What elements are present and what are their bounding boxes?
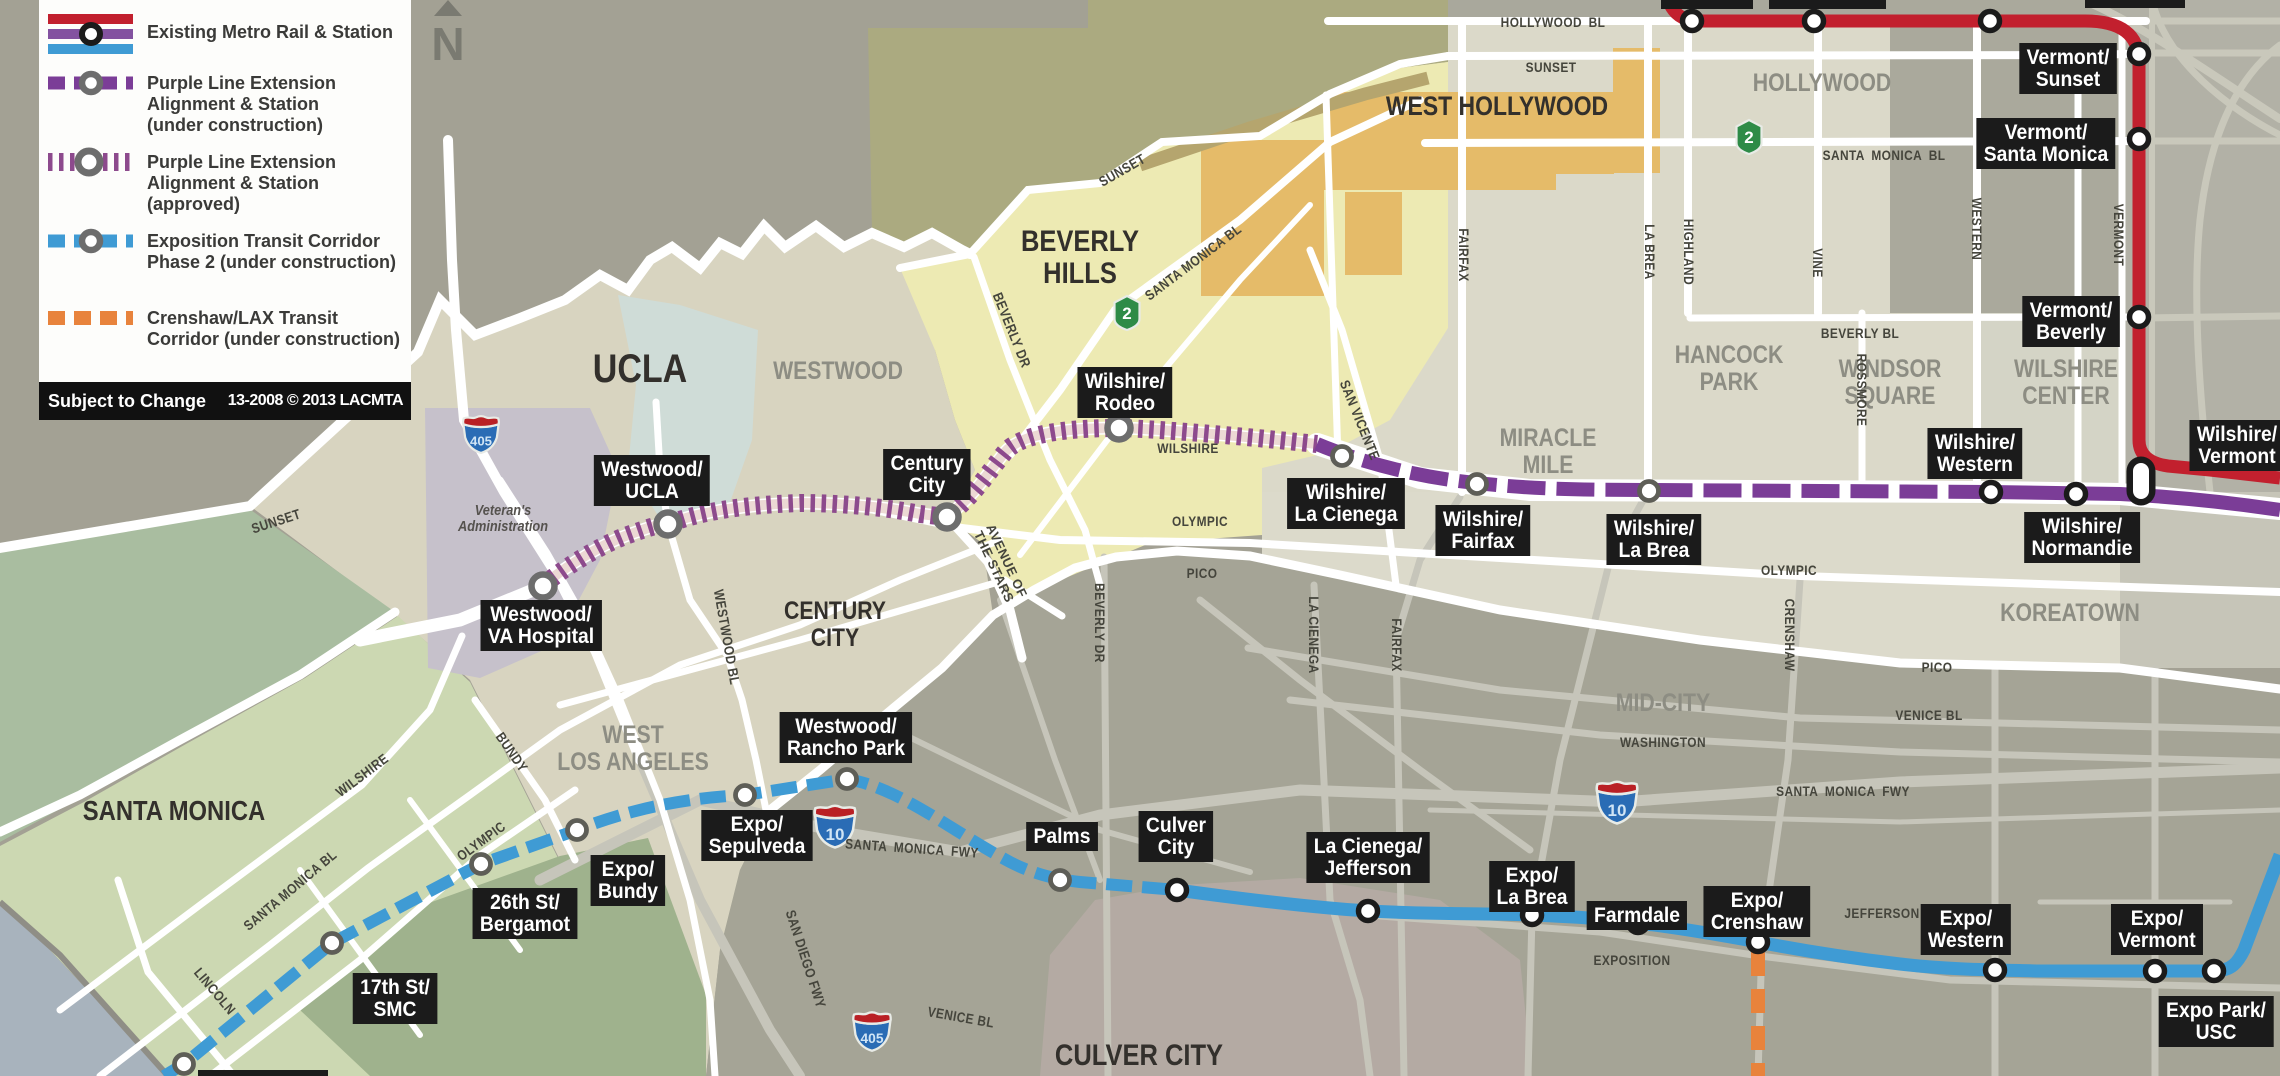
svg-text:10: 10 (826, 825, 845, 844)
svg-text:2: 2 (1122, 304, 1131, 323)
svg-text:10: 10 (1608, 801, 1627, 820)
svg-text:2: 2 (1744, 128, 1753, 147)
svg-text:405: 405 (470, 433, 492, 448)
svg-text:405: 405 (860, 1031, 883, 1046)
svg-text:N: N (431, 18, 464, 70)
